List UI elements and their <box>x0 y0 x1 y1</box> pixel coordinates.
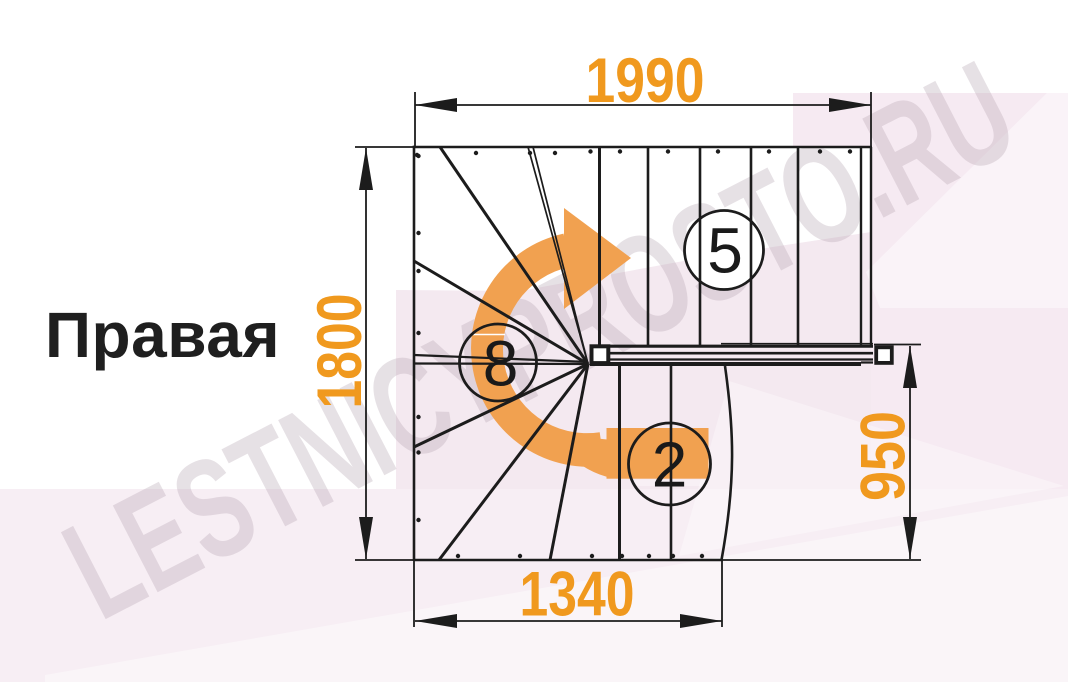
svg-text:950: 950 <box>849 411 919 501</box>
svg-text:1340: 1340 <box>520 560 635 630</box>
svg-text:8: 8 <box>483 328 519 400</box>
svg-text:Правая: Правая <box>45 299 280 371</box>
svg-text:2: 2 <box>652 429 688 501</box>
svg-text:5: 5 <box>707 215 743 287</box>
svg-text:1800: 1800 <box>305 294 375 409</box>
svg-text:1990: 1990 <box>586 46 705 116</box>
